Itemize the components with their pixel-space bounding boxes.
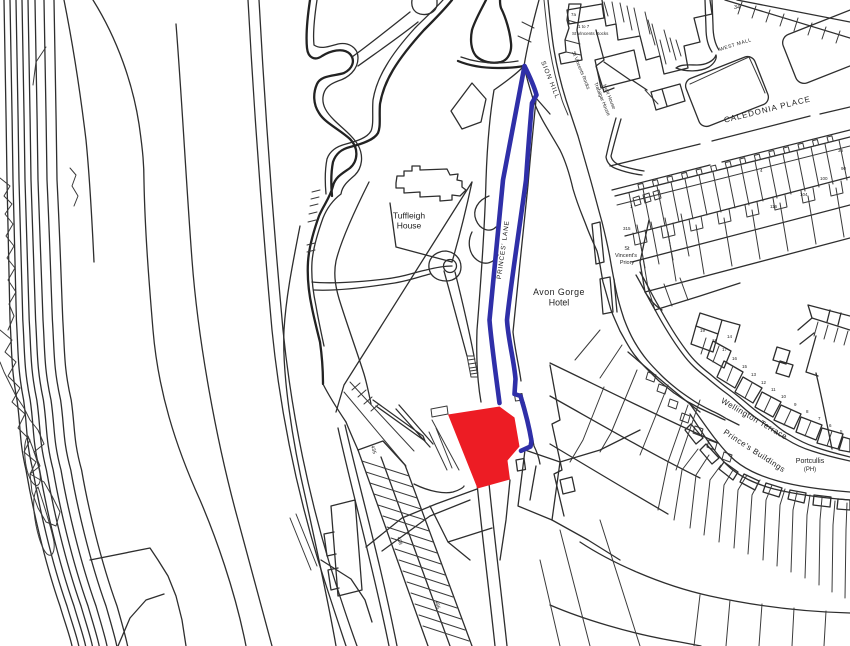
svg-text:100: 100 (820, 176, 828, 181)
svg-text:Portcullis: Portcullis (796, 458, 825, 465)
svg-text:Tuffleigh: Tuffleigh (393, 211, 425, 221)
svg-text:19: 19 (700, 328, 706, 333)
svg-text:St: St (624, 246, 630, 252)
svg-text:104: 104 (800, 192, 808, 197)
svg-text:7a: 7a (571, 12, 577, 17)
svg-text:St Vincents Rocks: St Vincents Rocks (572, 31, 609, 36)
svg-text:17: 17 (722, 347, 728, 352)
svg-text:90: 90 (841, 166, 847, 171)
svg-text:Avon Gorge: Avon Gorge (533, 287, 585, 297)
svg-text:12: 12 (761, 380, 767, 385)
svg-text:116: 116 (770, 204, 778, 209)
svg-text:Vincent's: Vincent's (615, 253, 637, 259)
svg-text:(PH): (PH) (804, 467, 816, 473)
svg-text:34: 34 (734, 5, 740, 11)
svg-text:13: 13 (751, 372, 757, 377)
svg-text:36: 36 (838, 148, 844, 153)
svg-text:1 to 7: 1 to 7 (578, 24, 590, 29)
svg-text:10: 10 (781, 394, 787, 399)
svg-text:15: 15 (742, 364, 748, 369)
svg-text:14: 14 (727, 334, 733, 339)
svg-text:Hotel: Hotel (549, 298, 570, 308)
svg-text:11: 11 (771, 387, 776, 392)
svg-text:18: 18 (712, 338, 718, 343)
svg-text:16: 16 (732, 356, 738, 361)
svg-text:House: House (397, 221, 422, 231)
svg-text:Priory: Priory (620, 260, 635, 266)
svg-text:315: 315 (623, 226, 631, 231)
